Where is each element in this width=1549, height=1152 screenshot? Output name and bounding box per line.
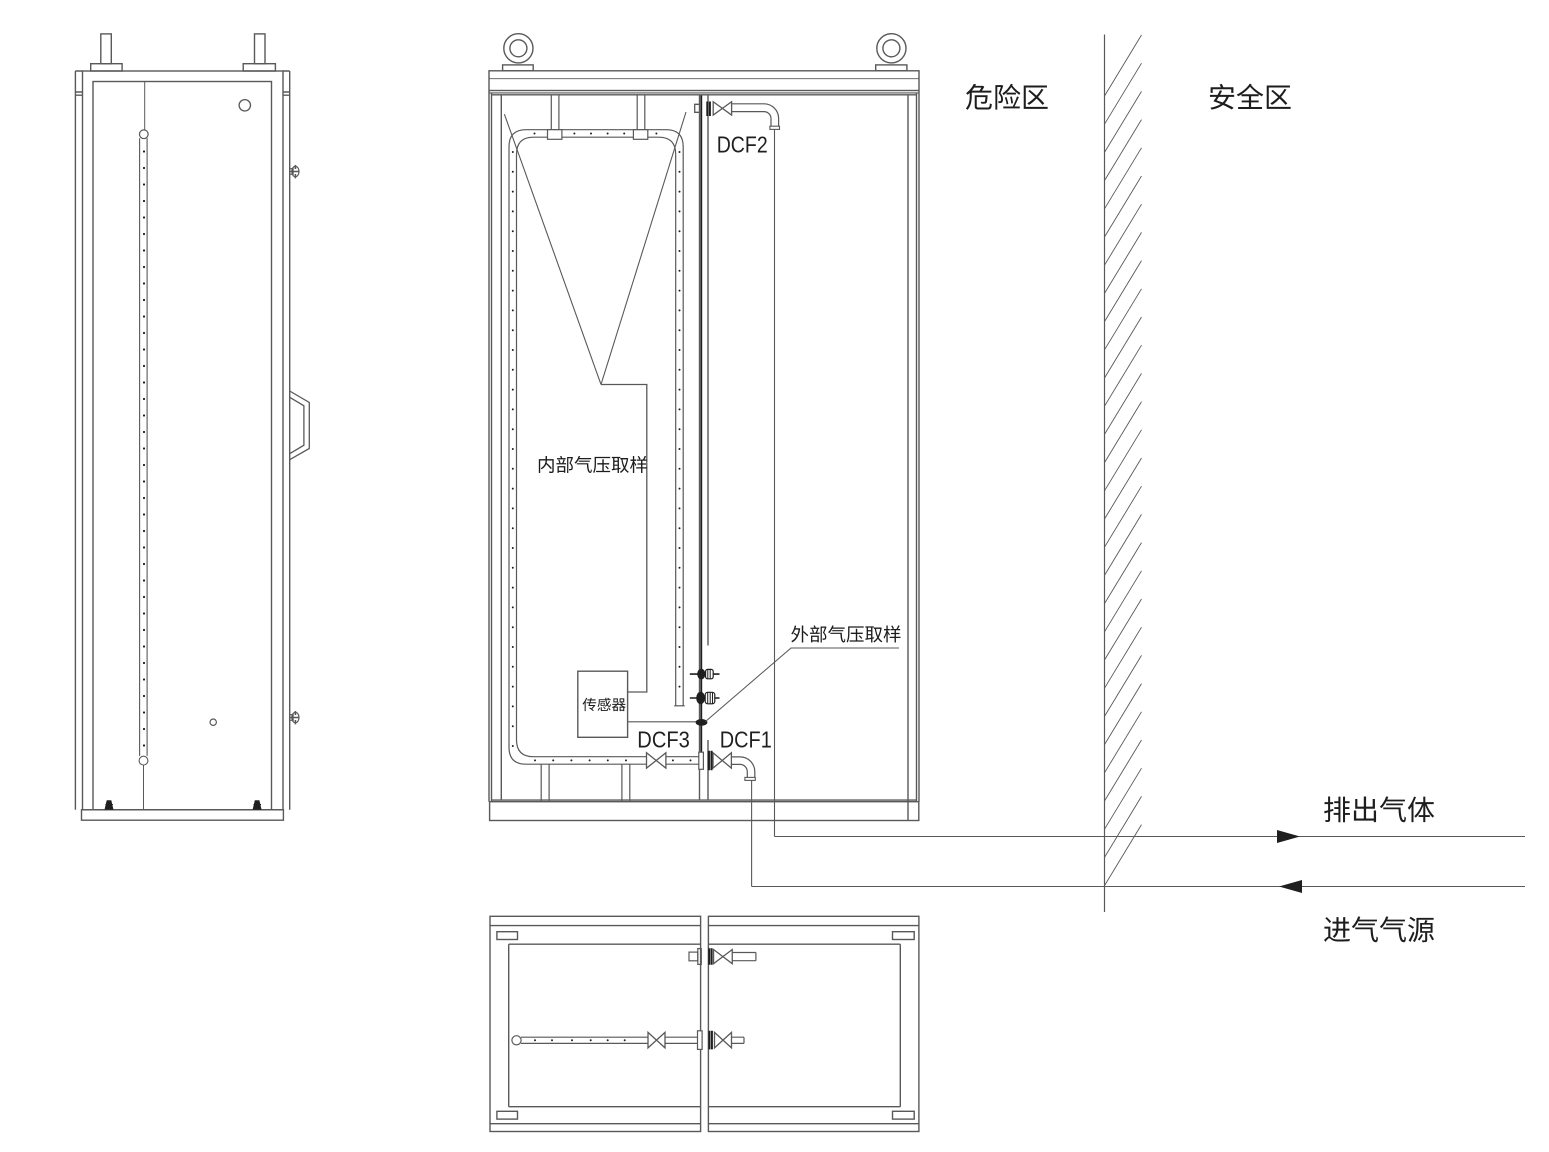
svg-text:DCF2: DCF2 [717,132,768,158]
svg-text:DCF3: DCF3 [637,727,690,753]
svg-text:DCF1: DCF1 [720,727,772,753]
